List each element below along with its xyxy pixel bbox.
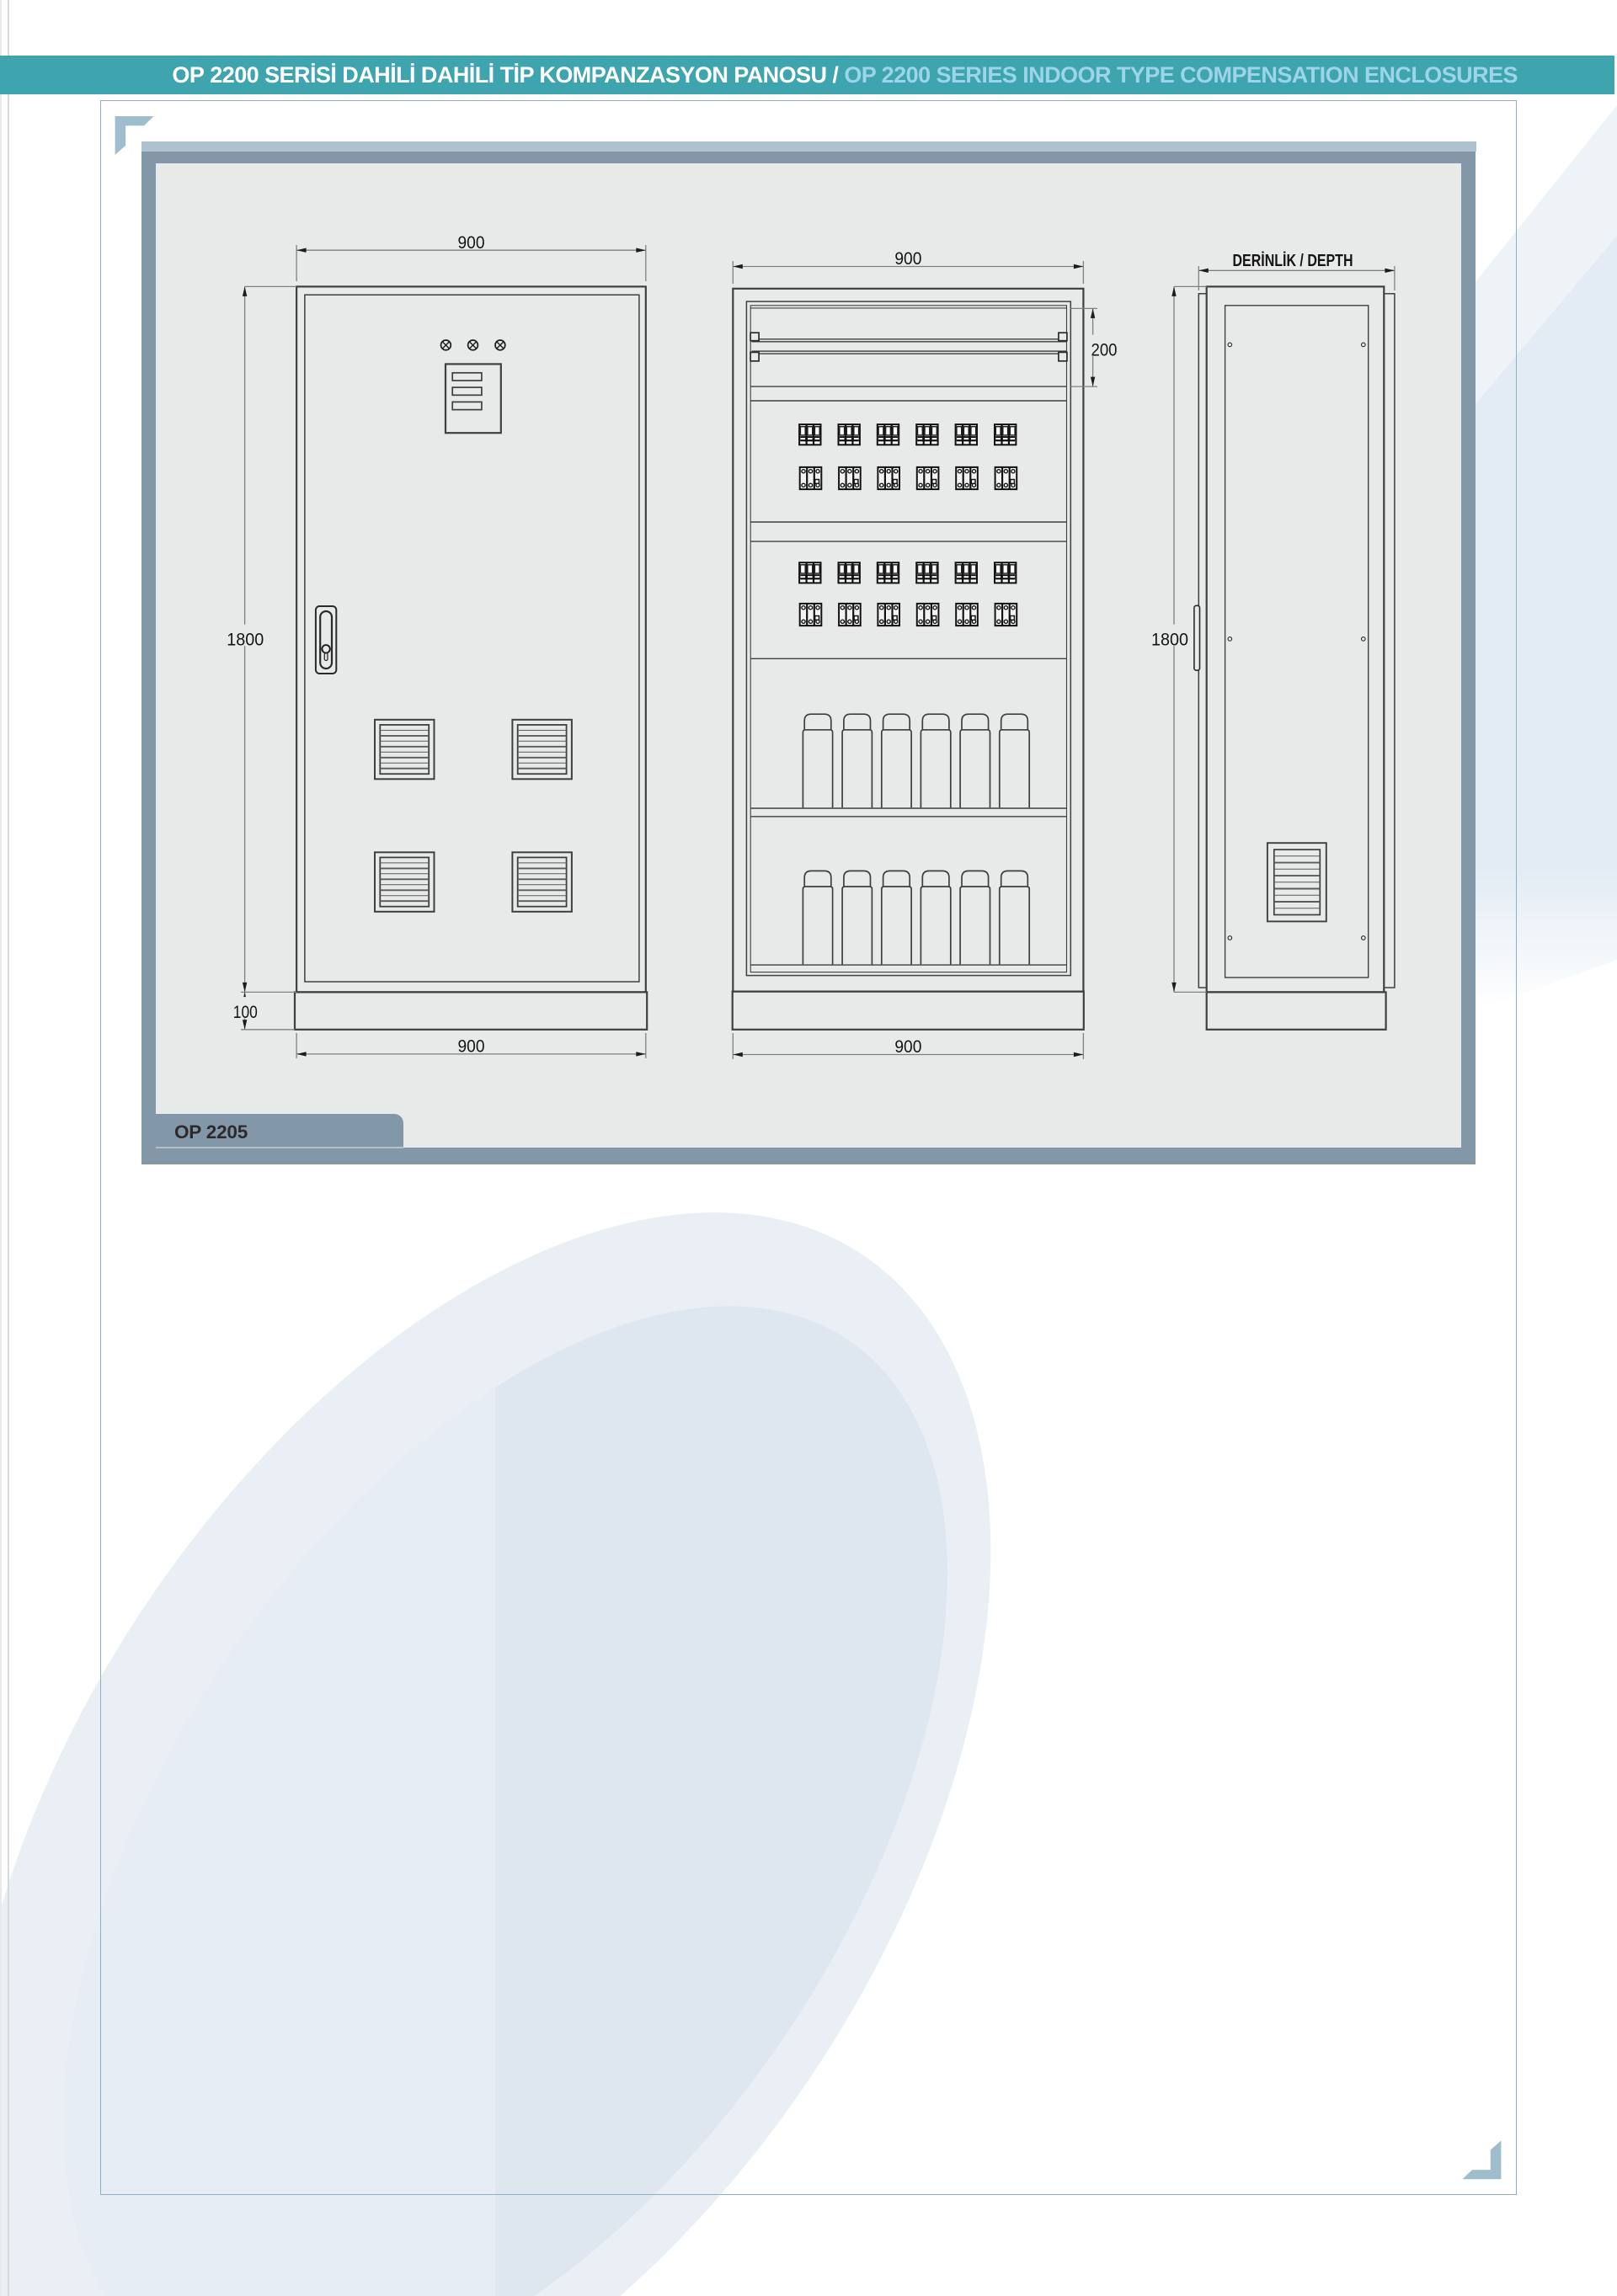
svg-text:1800: 1800 xyxy=(227,629,264,649)
svg-text:900: 900 xyxy=(894,1036,921,1057)
svg-text:900: 900 xyxy=(458,232,485,253)
svg-text:100: 100 xyxy=(233,1002,258,1022)
svg-text:900: 900 xyxy=(458,1036,485,1057)
svg-text:900: 900 xyxy=(894,248,921,269)
svg-text:DERİNLİK / DEPTH: DERİNLİK / DEPTH xyxy=(1233,251,1353,270)
svg-text:200: 200 xyxy=(1091,339,1118,360)
svg-text:1800: 1800 xyxy=(1151,629,1188,649)
